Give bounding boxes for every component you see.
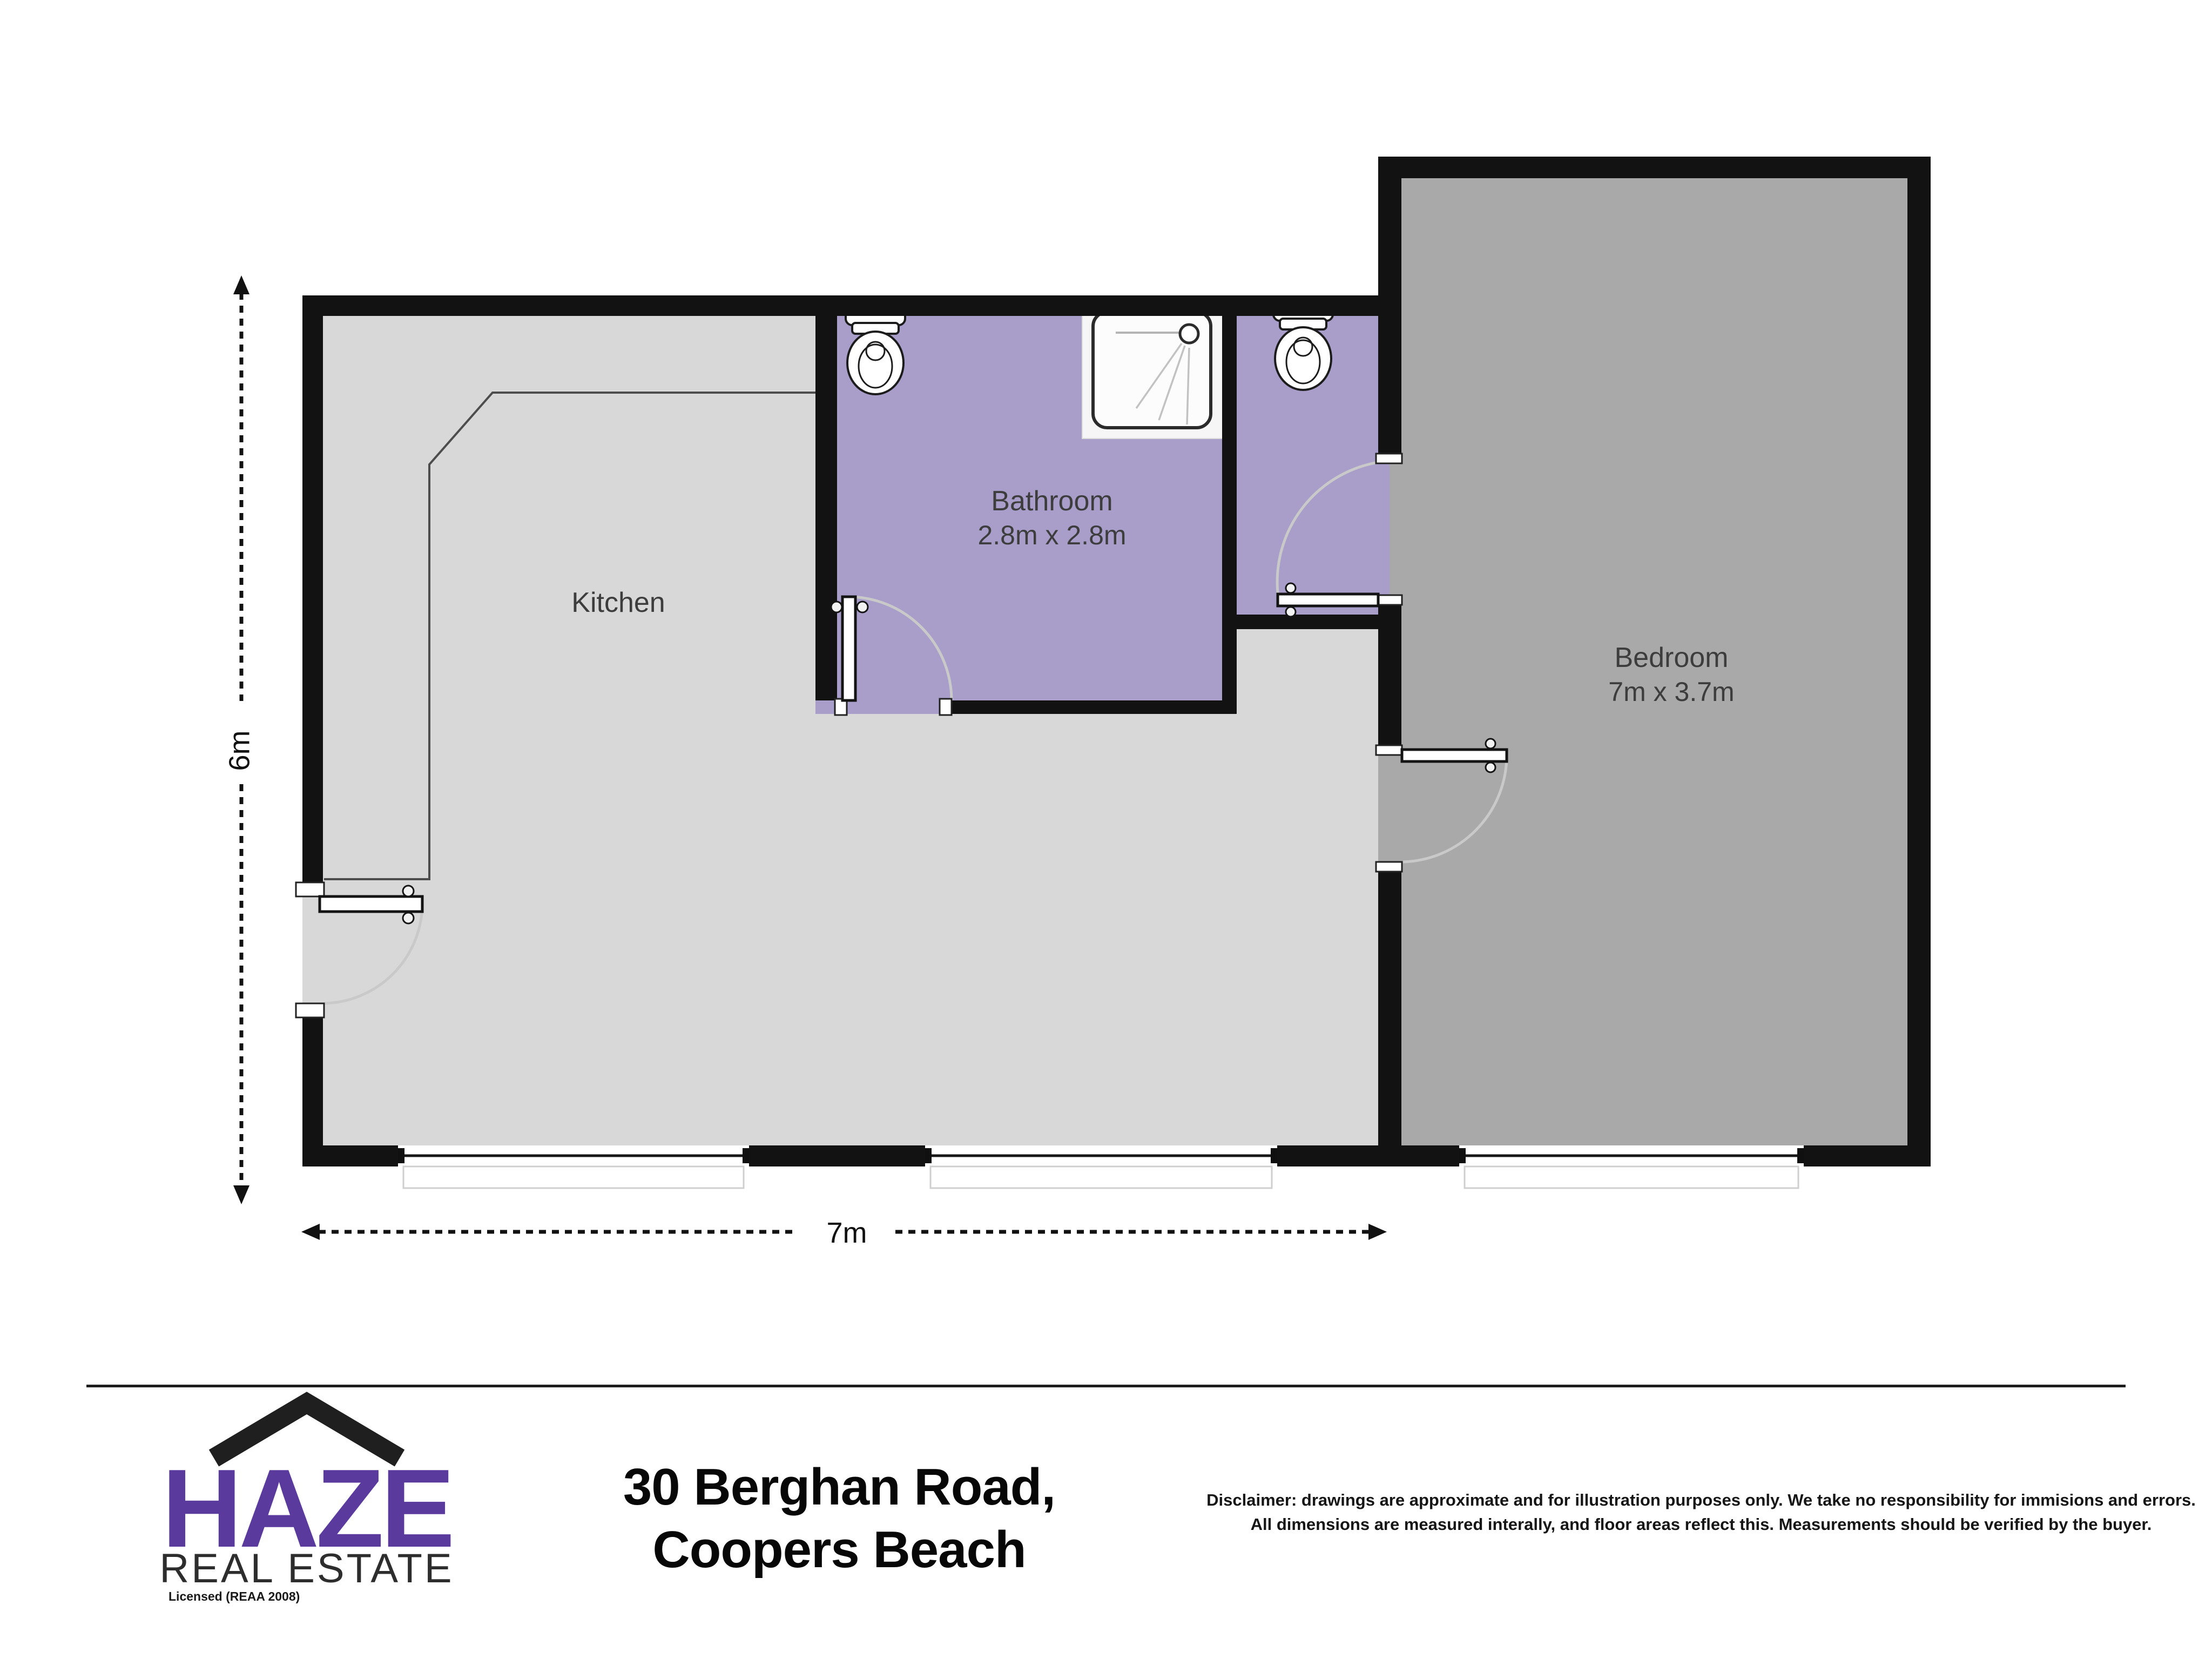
bathroom-label: Bathroom (991, 485, 1112, 517)
disclaimer-line-1: Disclaimer: drawings are approximate and… (1206, 1491, 2196, 1509)
bathroom-size: 2.8m x 2.8m (977, 520, 1126, 550)
dimension-arrow-left (301, 1224, 320, 1240)
door-leaf (1278, 594, 1378, 606)
width-dimension-label: 7m (826, 1217, 867, 1249)
wall-top-main (302, 295, 1401, 316)
wall-left-lower (302, 1003, 323, 1166)
footer-divider (86, 1385, 2126, 1387)
kitchen-label: Kitchen (571, 587, 665, 618)
wall-bottom-2 (748, 1145, 926, 1166)
bedroom-size: 7m x 3.7m (1608, 677, 1734, 707)
disclaimer: Disclaimer: drawings are approximate and… (1206, 1491, 2196, 1534)
dimension-arrow-right (1368, 1224, 1387, 1240)
window-3 (1459, 1145, 1804, 1188)
wall-bedroom-right (1907, 157, 1931, 1166)
property-address: 30 Berghan Road, Coopers Beach (623, 1458, 1055, 1579)
wall-wc-bottom (1222, 615, 1378, 629)
address-line-2: Coopers Beach (652, 1521, 1026, 1579)
brand-subtitle: REAL ESTATE (159, 1546, 454, 1591)
wall-divider-upper (1378, 157, 1401, 462)
floorplan-canvas: Kitchen Bathroom 2.8m x 2.8m Bedroom 7m … (0, 0, 2212, 1659)
wall-bathroom-left (815, 316, 837, 700)
wall-divider-lower (1378, 863, 1401, 1166)
door-leaf (320, 896, 422, 912)
wall-bottom-3 (1276, 1145, 1460, 1166)
dimension-arrow-up (233, 275, 249, 294)
disclaimer-line-2: All dimensions are measured interally, a… (1251, 1515, 2152, 1534)
height-dimension-label: 6m (223, 730, 255, 771)
bathroom-toilet-icon (846, 306, 905, 394)
wall-bathroom-bottom (949, 700, 1237, 714)
wall-left-upper (302, 295, 323, 896)
bedroom-label: Bedroom (1615, 642, 1729, 673)
brand-logo: HAZE REAL ESTATE Licensed (REAA 2008) (159, 1403, 454, 1603)
dimension-arrow-down (233, 1185, 249, 1204)
door-leaf (842, 597, 855, 700)
door-leaf (1402, 750, 1507, 761)
address-line-1: 30 Berghan Road, (623, 1458, 1055, 1516)
wall-bathroom-right (1222, 316, 1237, 714)
vertical-dimension: 6m (223, 275, 255, 1204)
wall-bedroom-top (1378, 157, 1931, 178)
window-1 (398, 1145, 749, 1188)
horizontal-dimension: 7m (301, 1217, 1387, 1249)
shower-icon (1082, 302, 1223, 439)
wall-bottom-1 (302, 1145, 400, 1166)
window-2 (925, 1145, 1277, 1188)
wall-divider-mid (1378, 605, 1401, 749)
license-text: Licensed (REAA 2008) (168, 1589, 300, 1603)
